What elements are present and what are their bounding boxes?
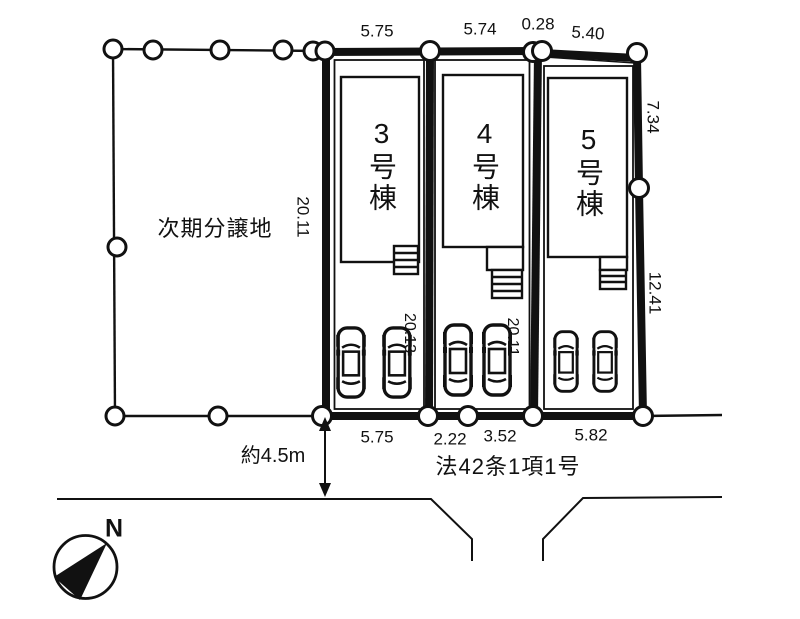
lot-4-name: 4号棟 bbox=[470, 118, 498, 214]
dim-bottom-4: 5.82 bbox=[574, 427, 607, 444]
dim-bottom-2: 2.22 bbox=[433, 431, 466, 448]
north-compass-icon bbox=[54, 536, 117, 601]
car-icon bbox=[553, 332, 579, 392]
dim-top-3: 0.28 bbox=[521, 16, 554, 33]
lot-3-name: 3号棟 bbox=[367, 118, 395, 214]
dim-bottom-1: 5.75 bbox=[360, 429, 393, 446]
lot-3-depth: 20.13 bbox=[401, 313, 417, 353]
dim-bottom-3: 3.52 bbox=[483, 428, 516, 445]
dim-right-lower: 12.41 bbox=[647, 272, 664, 315]
car-icon bbox=[443, 325, 473, 395]
dim-left: 20.11 bbox=[295, 196, 312, 237]
lot-5-name: 5号棟 bbox=[574, 124, 602, 220]
road-width-label: 約4.5m bbox=[241, 446, 305, 466]
road-width-arrow bbox=[319, 417, 331, 497]
parking-cars bbox=[336, 325, 618, 397]
lot-4-depth: 20.11 bbox=[504, 318, 520, 357]
compass-north-label: N bbox=[105, 515, 123, 544]
dim-top-4: 5.40 bbox=[571, 23, 605, 42]
site-plan: 5.75 5.74 0.28 5.40 20.11 7.34 12.41 20.… bbox=[0, 0, 800, 619]
road-law-label: 法42条1項1号 bbox=[436, 456, 581, 478]
car-icon bbox=[592, 332, 618, 392]
road-edge-line bbox=[57, 497, 722, 561]
dim-top-2: 5.74 bbox=[463, 21, 496, 38]
dim-right-upper: 7.34 bbox=[645, 100, 662, 133]
dim-top-1: 5.75 bbox=[360, 23, 393, 40]
car-icon bbox=[336, 328, 366, 397]
adjacent-parcel-label: 次期分譲地 bbox=[157, 218, 272, 240]
